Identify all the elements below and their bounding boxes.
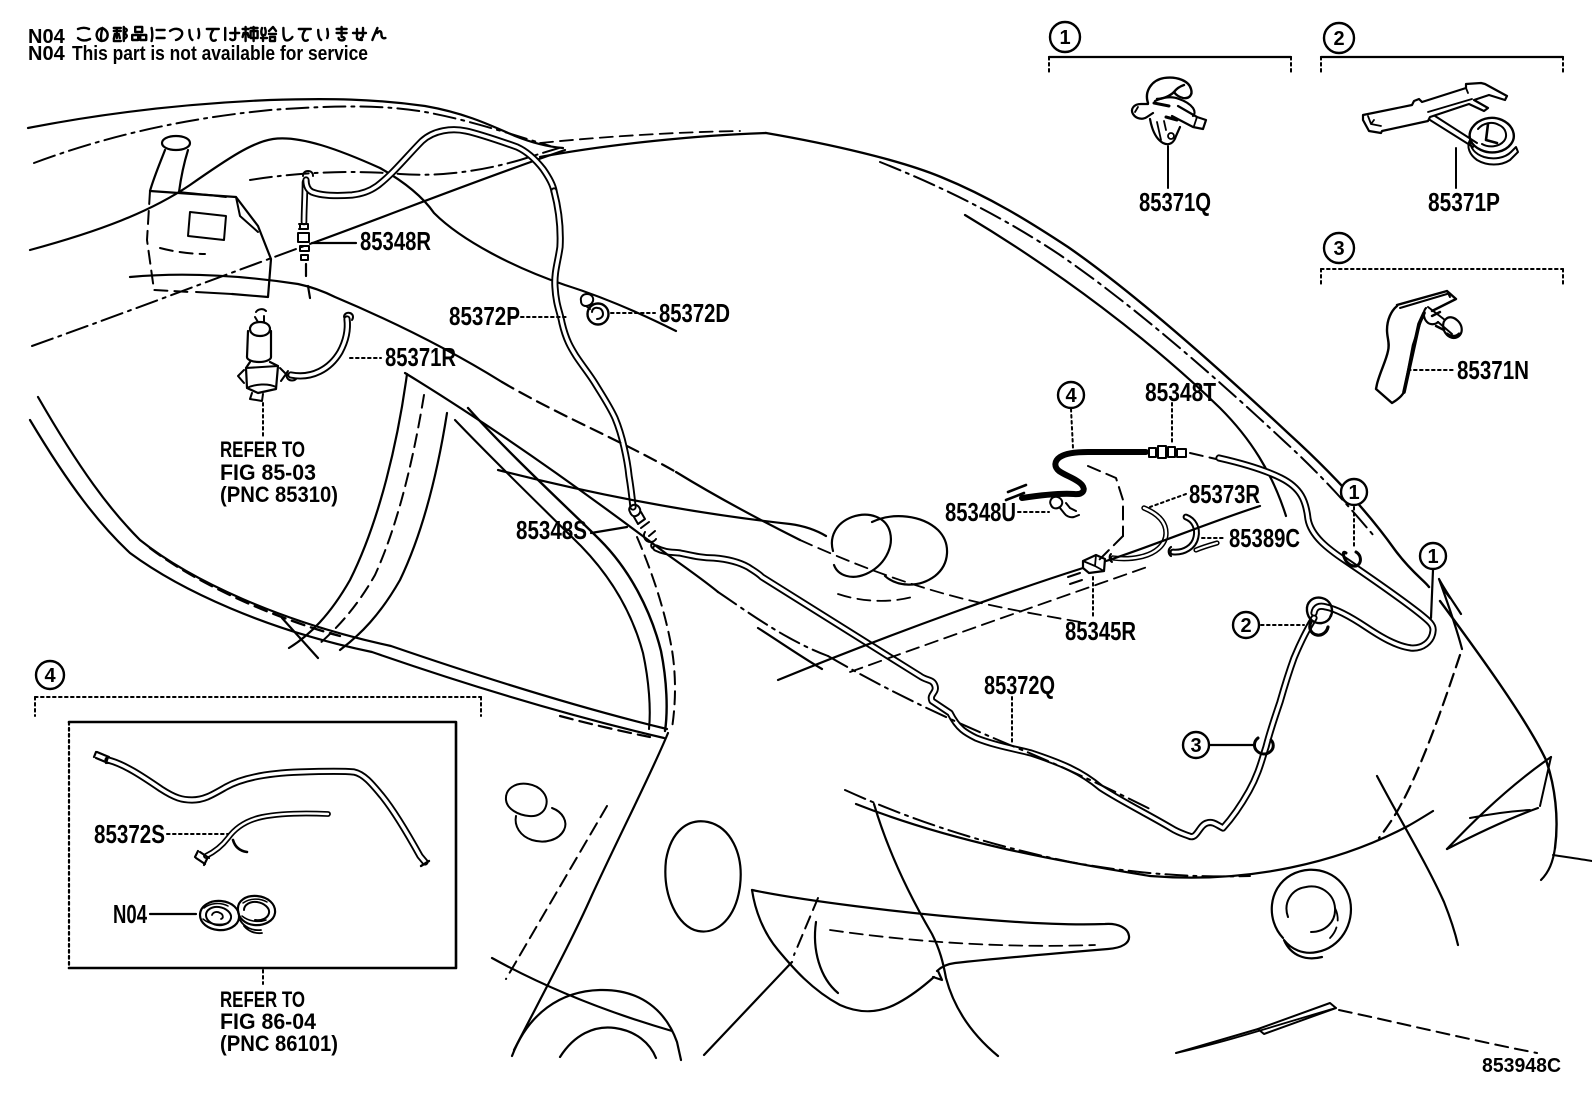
svg-text:85373R: 85373R bbox=[1189, 479, 1260, 509]
svg-text:85372P: 85372P bbox=[449, 301, 520, 331]
svg-text:85371N: 85371N bbox=[1457, 355, 1529, 385]
svg-text:85389C: 85389C bbox=[1229, 523, 1300, 553]
svg-text:85348T: 85348T bbox=[1145, 377, 1216, 407]
svg-text:2: 2 bbox=[1240, 615, 1251, 637]
svg-text:This part is not available for: This part is not available for service bbox=[72, 43, 368, 65]
svg-text:85348U: 85348U bbox=[945, 497, 1016, 527]
svg-text:N04: N04 bbox=[113, 899, 147, 929]
svg-text:85371R: 85371R bbox=[385, 342, 456, 372]
svg-text:85348R: 85348R bbox=[360, 226, 431, 256]
svg-text:85372S: 85372S bbox=[94, 819, 165, 849]
svg-text:4: 4 bbox=[44, 665, 56, 687]
svg-text:1: 1 bbox=[1059, 27, 1070, 49]
svg-text:1: 1 bbox=[1427, 546, 1438, 568]
svg-text:85371P: 85371P bbox=[1428, 187, 1500, 217]
svg-text:N04: N04 bbox=[28, 43, 66, 65]
svg-text:2: 2 bbox=[1333, 28, 1344, 50]
svg-text:1: 1 bbox=[1348, 482, 1359, 504]
svg-text:3: 3 bbox=[1333, 238, 1344, 260]
svg-text:85371Q: 85371Q bbox=[1139, 187, 1211, 217]
svg-text:4: 4 bbox=[1065, 385, 1077, 407]
svg-text:85372Q: 85372Q bbox=[984, 670, 1055, 700]
svg-text:REFER TO: REFER TO bbox=[220, 437, 305, 462]
svg-text:3: 3 bbox=[1190, 735, 1201, 757]
svg-text:85372D: 85372D bbox=[659, 298, 730, 328]
svg-text:853948C: 853948C bbox=[1482, 1055, 1561, 1077]
svg-text:(PNC 86101): (PNC 86101) bbox=[220, 1031, 338, 1056]
svg-text:(PNC 85310): (PNC 85310) bbox=[220, 482, 338, 507]
